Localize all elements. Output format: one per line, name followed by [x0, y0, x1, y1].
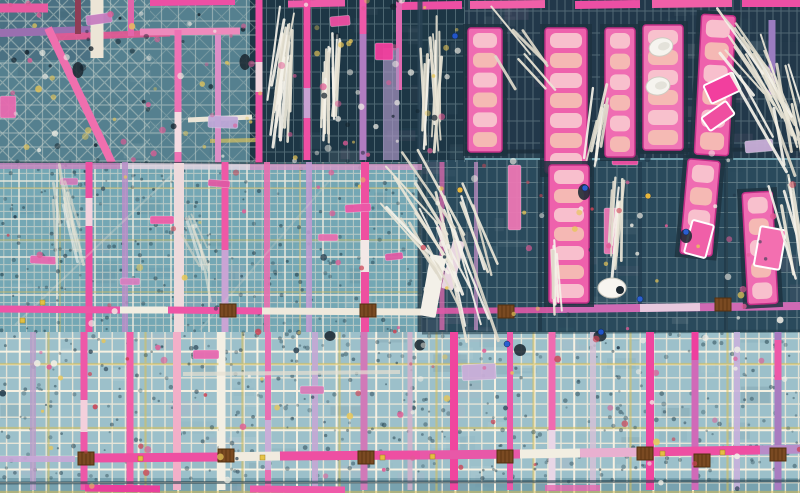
construction-site-scene	[0, 0, 800, 493]
aerial-construction-photo	[0, 0, 800, 493]
